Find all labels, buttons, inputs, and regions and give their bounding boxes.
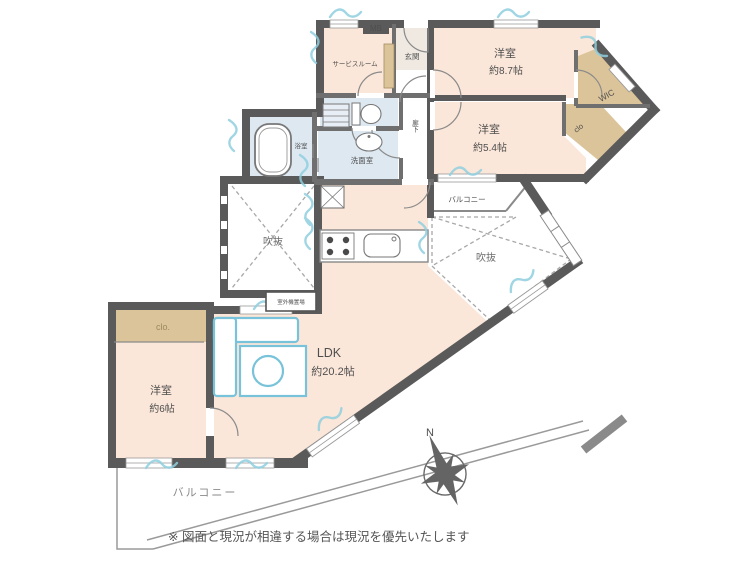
table-circle [253, 356, 283, 386]
label-closet-west: clo. [156, 322, 170, 332]
label-washroom: 洗面室 [351, 155, 374, 165]
toilet-tank [352, 103, 360, 125]
balcony-divider [581, 414, 628, 453]
room-entrance-floor [396, 26, 428, 70]
label-outdoor-unit: 室外機置場 [277, 298, 305, 306]
label-western54-name: 洋室 [478, 122, 500, 136]
label-compass-north: N [426, 427, 434, 439]
label-void-left: 吹抜 [263, 235, 283, 248]
room-service [320, 24, 394, 96]
furniture [214, 318, 306, 396]
floor-plan-page: MB サービスルーム 玄関 洋室 約8.7帖 洋室 約5.4帖 WIC clo … [0, 0, 750, 561]
room-western-6 [112, 342, 206, 460]
room-western-8-7 [430, 24, 596, 98]
toilet-bowl [361, 105, 381, 124]
bathtub [255, 124, 291, 176]
label-western87-name: 洋室 [494, 46, 516, 60]
shoe-cabinet [384, 44, 394, 88]
washing-machine [323, 104, 349, 127]
entrance-hall-door-arc [400, 76, 426, 102]
label-ldk-name: LDK [317, 346, 342, 360]
stove [322, 233, 354, 259]
label-service-room: サービスルーム [332, 59, 378, 68]
disclaimer-text: ※ 図面と現況が相違する場合は現況を優先いたします [168, 529, 469, 544]
floor-plan: MB サービスルーム 玄関 洋室 約8.7帖 洋室 約5.4帖 WIC clo … [0, 0, 750, 561]
label-entrance: 玄関 [405, 51, 420, 61]
compass-rose [400, 423, 486, 517]
label-meter-box: MB [370, 24, 382, 33]
sofa-vertical [214, 318, 236, 396]
label-balcony-small: バルコニー [448, 195, 485, 204]
label-ldk-size: 約20.2帖 [311, 364, 354, 378]
label-western87-size: 約8.7帖 [489, 64, 523, 77]
label-bath: 浴室 [295, 141, 309, 150]
label-corridor: 廊下 [411, 118, 419, 134]
label-balcony-main: バルコニー [173, 486, 238, 499]
label-western6-name: 洋室 [150, 383, 172, 397]
label-void-right: 吹抜 [476, 251, 496, 264]
label-western6-size: 約6帖 [149, 402, 175, 415]
label-western54-size: 約5.4帖 [473, 141, 507, 154]
